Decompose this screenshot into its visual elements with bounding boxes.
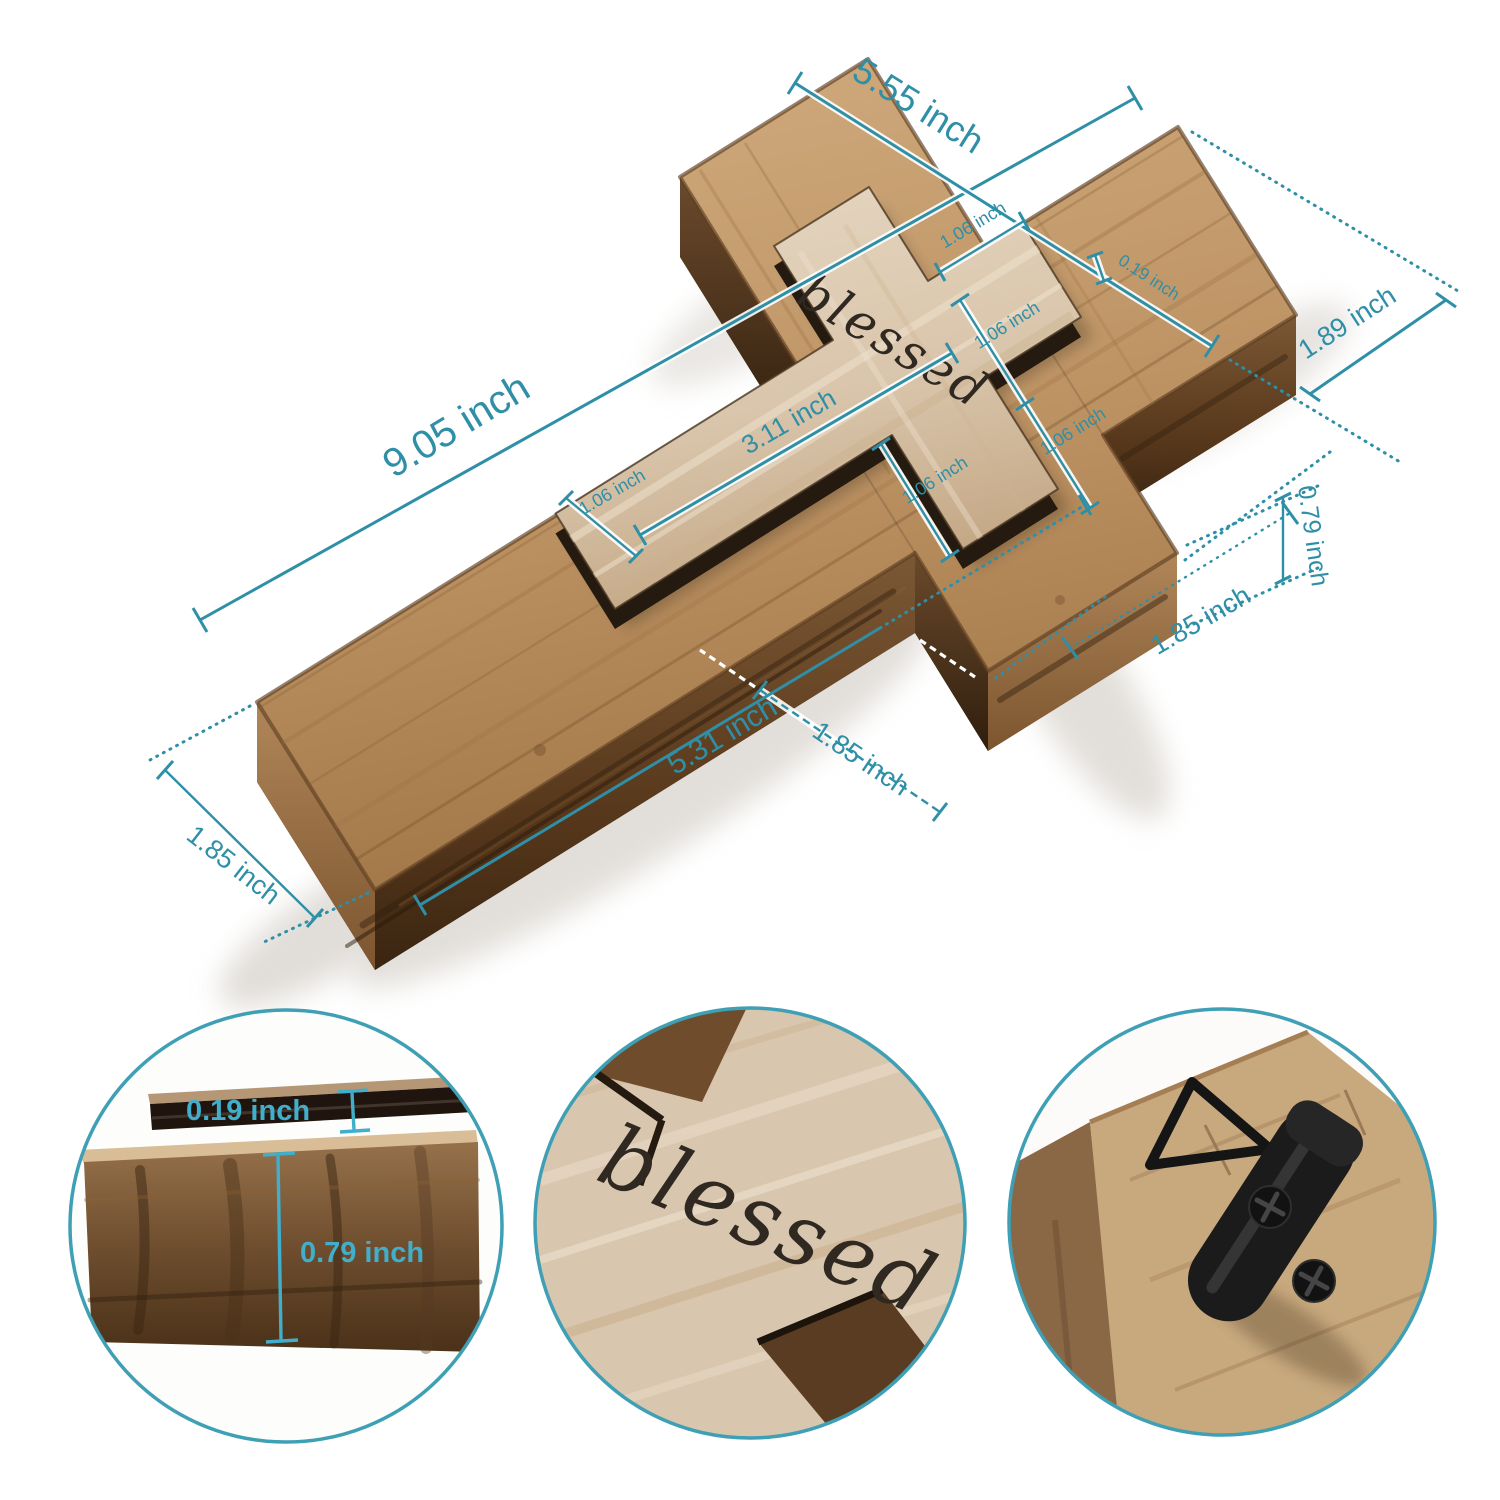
phillips-screw-1 (1249, 1186, 1291, 1228)
product-dimension-diagram: blessed 9.05 inch 5.55 inch 1.89 inch (0, 0, 1500, 1500)
detail-plaque-thickness-label: 0.19 inch (186, 1095, 310, 1127)
phillips-screw-2 (1293, 1260, 1335, 1302)
detail-board-thickness-label: 0.79 inch (300, 1237, 424, 1269)
diagram-canvas: blessed 9.05 inch 5.55 inch 1.89 inch (0, 0, 1500, 1500)
